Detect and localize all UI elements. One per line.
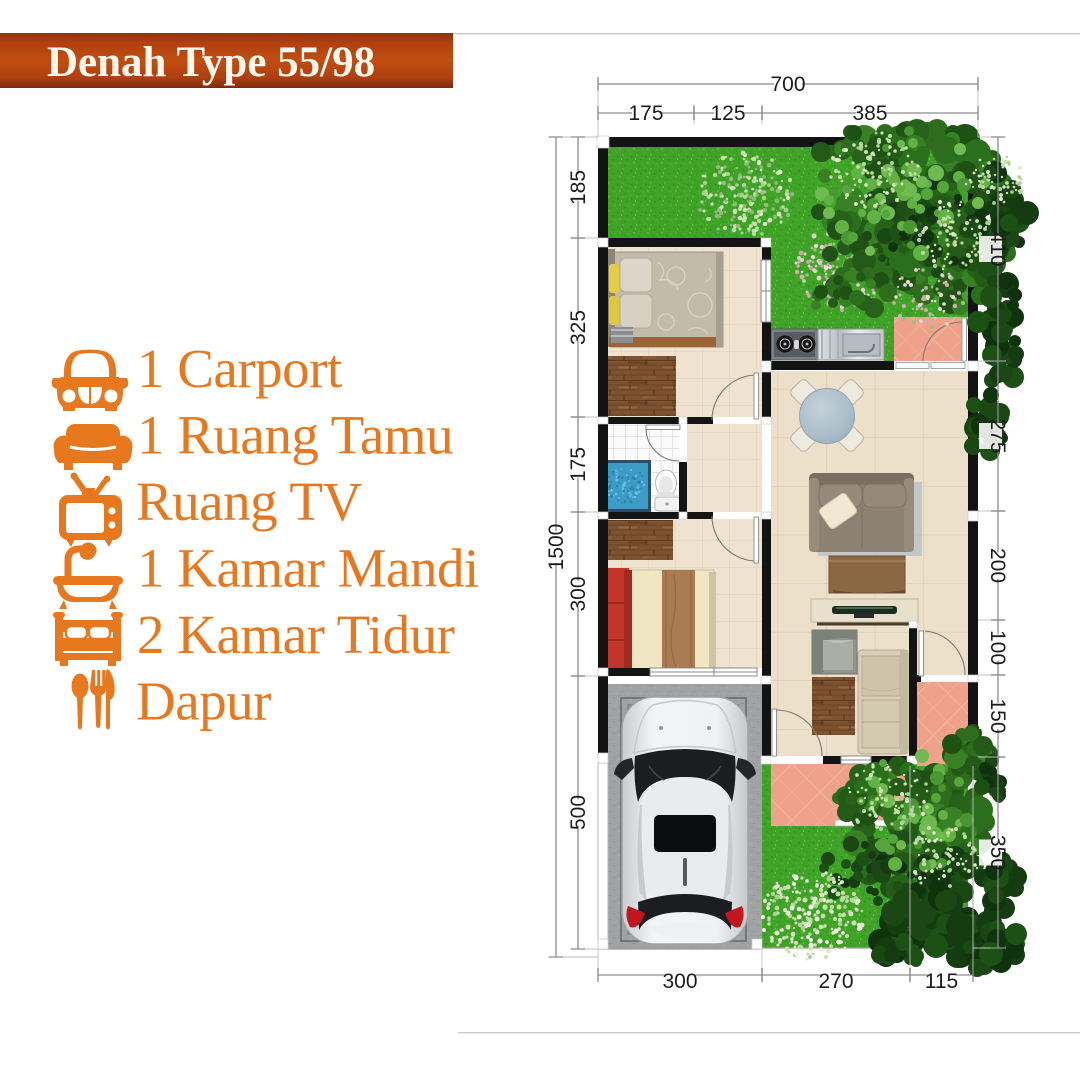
svg-text:410: 410 [986,231,1009,266]
svg-text:Ruang TV: Ruang TV [136,471,362,532]
svg-text:200: 200 [986,548,1009,583]
svg-text:175: 175 [567,447,590,482]
svg-text:350: 350 [986,835,1009,870]
svg-text:300: 300 [662,970,697,993]
svg-text:Dapur: Dapur [136,671,271,732]
svg-text:185: 185 [567,170,590,205]
svg-text:1 Ruang Tamu: 1 Ruang Tamu [137,405,453,466]
svg-text:Denah Type 55/98: Denah Type 55/98 [47,39,375,86]
svg-text:270: 270 [818,970,853,993]
svg-text:275: 275 [986,418,1009,453]
svg-text:125: 125 [710,102,745,125]
svg-text:150: 150 [986,698,1009,733]
svg-text:300: 300 [567,576,590,611]
svg-text:100: 100 [986,630,1009,665]
svg-text:385: 385 [852,102,887,125]
svg-text:325: 325 [567,310,590,345]
svg-text:500: 500 [567,795,590,830]
svg-text:1 Carport: 1 Carport [137,338,342,399]
svg-text:175: 175 [628,102,663,125]
svg-text:700: 700 [770,73,805,96]
svg-text:115: 115 [925,970,958,993]
svg-text:1500: 1500 [545,524,568,571]
svg-text:2 Kamar Tidur: 2 Kamar Tidur [137,604,455,665]
svg-text:1 Kamar Mandi: 1 Kamar Mandi [137,538,479,599]
